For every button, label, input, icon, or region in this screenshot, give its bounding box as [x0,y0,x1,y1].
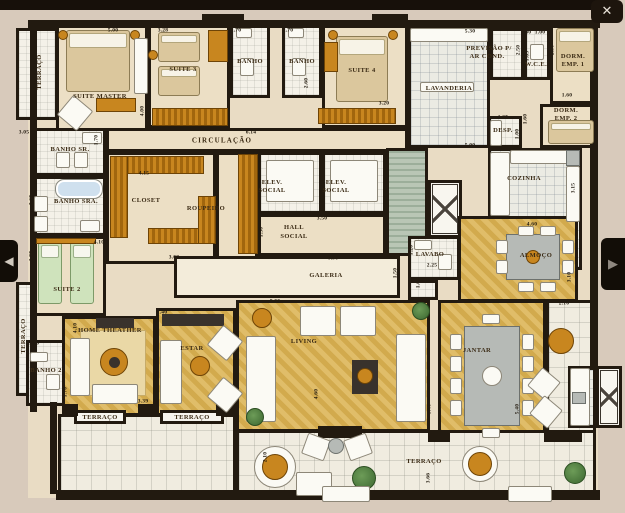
label-banho-sr--17: BANHO SR. [51,147,90,154]
banheira-sra [56,180,102,198]
cadeira-jt-2 [450,356,462,372]
cabine-elev-serv-2 [600,370,618,424]
pillar-bottom-5 [428,432,450,442]
label-roupeiro-20: ROUPEIRO [187,206,225,213]
label-1-35-54: 1.35 [498,115,508,121]
label-1-00-56: 1.00 [515,129,521,139]
label-almo-o-29: ALMOÇO [520,253,552,260]
label-1-50-73: 1.50 [393,268,399,278]
label-1-70-43: 1.70 [231,28,241,34]
vaso-wce [530,44,544,60]
mesa-lateral-estar [190,356,210,376]
label-dorm--10: DORM. [561,54,585,61]
label-2-10-89: 2.10 [559,301,569,307]
label-5-00-57: 5.00 [465,143,475,149]
roupeiro-movel [238,154,258,254]
prev-image-button[interactable]: ◀ [0,240,18,282]
cadeira-al-1 [496,240,508,254]
wall-left-low [50,402,57,494]
label-living-34: LIVING [291,339,317,346]
label-8-00-84: 8.00 [270,299,280,305]
cadeira-al-8 [540,282,556,292]
label-6-90-72: 6.90 [328,256,338,262]
label-suite-master-1: SUITE MASTER [73,94,127,101]
label-1-70-53: 1.70 [564,101,574,107]
vaso-banho2b [46,374,60,390]
label-lavanderia-6: LAVANDERIA [426,86,472,93]
room-lavabo-nicho [408,280,438,300]
label-3-20-45: 3.20 [379,101,389,107]
criado-1 [58,30,68,40]
label-5-00-41: 5.00 [108,28,118,34]
pia-lavabo [414,240,432,250]
cama-s2-1 [38,242,62,304]
label-social-26: SOCIAL [280,234,307,241]
label-1-60-52: 1.60 [562,93,572,99]
label-1-00-48: 1.00 [535,30,545,36]
close-button[interactable]: ✕ [591,0,623,23]
label-suite-3-2: SUITE 3 [169,67,196,74]
label-1-50-71: 1.50 [259,227,265,237]
label-jantar-35: JANTAR [463,348,491,355]
tampo-centro-living [357,368,373,384]
cadeira-jt-10 [482,428,500,438]
sofa-estar [160,340,182,404]
arrow-left-icon: ◀ [4,254,13,268]
mesa-canto-living [252,308,272,328]
label-2-50-49: 2.50 [516,45,522,55]
label-elev--23: ELEV. [326,180,347,187]
criado-s3 [148,50,158,60]
criado-s4-2 [388,30,398,40]
label-suite-4-5: SUITE 4 [348,68,375,75]
room-circulacao [106,128,408,152]
escrivaninha-s4 [324,42,338,72]
label-1-00-76: 1.00 [416,278,422,288]
label-2-50-51: 2.50 [550,45,556,55]
planta-living-2 [246,408,264,426]
tampo-terraco-2 [468,452,492,476]
label-4-60-85: 4.60 [314,389,320,399]
label-4-00-59: 4.00 [140,106,146,116]
pillar-bottom-1 [62,404,78,416]
label-3-39-83: 3.39 [138,399,148,405]
escrivaninha-s3 [208,30,228,62]
centro-jantar [482,366,502,386]
label-dorm--12: DORM. [554,108,578,115]
bide-banho-sra [34,216,48,232]
label-3-05-40: 3.05 [19,130,29,136]
cadeira-jt-5 [522,334,534,350]
label-2-25-75: 2.25 [427,263,437,269]
label-3-60-86: 3.60 [470,299,480,305]
pillar-top-2 [372,14,408,24]
label-4-60-77: 4.60 [527,222,537,228]
cabine-elev-servico [432,184,458,234]
cabeceira-s2 [36,238,96,244]
label-3-28-42: 3.28 [158,28,168,34]
sofa-living-dir [396,334,426,422]
armario-closet-2 [110,156,128,238]
armario-s3 [152,108,228,126]
image-viewer: TERRAÇOSUITE MASTERSUITE 3BANHOBANHOSUIT… [0,0,625,513]
cadeira-jt-9 [482,314,500,324]
label-emp-1-11: EMP. 1 [562,62,585,69]
wall-right-mid [590,296,598,370]
cuba-copa [572,392,586,404]
label-1-20-74: 1.20 [409,245,415,255]
label-emp-2-13: EMP. 2 [555,116,578,123]
pillar-bottom-6 [544,432,582,442]
close-icon: ✕ [602,4,613,19]
label-galeria-27: GALERIA [309,273,342,280]
label-3-90-69: 3.90 [29,251,35,261]
label-terra-o-36: TERRAÇO [406,459,441,466]
bancada-coz-dir [566,166,580,222]
bide-banho-sr [74,152,88,168]
armario-closet-4 [198,196,216,244]
label-w-c-e--9: W.C.E. [525,62,547,69]
floreira-muro-2 [508,486,552,502]
label-1-70-81: 1.70 [63,387,69,397]
label-terra-o-38: TERRAÇO [174,415,209,422]
label-3-05-65: 3.05 [83,174,93,180]
cadeira-al-6 [540,226,556,236]
label-closet-19: CLOSET [132,198,161,205]
top-bar [0,0,600,10]
poltrona-living-2 [340,306,376,336]
label-cozinha-15: COZINHA [507,176,541,183]
bancada-lavanderia [410,28,488,42]
cama-s2-2 [70,242,94,304]
label-1-70-67: 1.70 [94,135,100,145]
label-3-50-70: 3.50 [317,216,327,222]
vaso-banho-sr [56,152,70,168]
label-5-40-88: 5.40 [515,404,521,414]
pia-banho-sra [80,220,100,232]
floreira-muro-1 [322,486,370,502]
cadeira-jt-4 [450,400,462,416]
pufe-terraco [328,438,344,454]
cadeira-al-7 [518,282,534,292]
cama-master [66,30,130,92]
bancada-coz-esq [490,152,510,216]
label-3-15-58: 3.15 [571,183,577,193]
room-galeria [174,256,400,298]
label-2-60-61: 2.60 [304,78,310,88]
label-1-83-50: 1.83 [525,51,531,61]
label-2-60-60: 2.60 [229,79,235,89]
pillar-top-1 [202,14,244,24]
pillar-bottom-2 [138,404,158,416]
label-social-24: SOCIAL [322,188,349,195]
arrow-right-icon: ▶ [608,257,618,272]
criado-s4-1 [328,30,338,40]
cadeira-al-3 [562,240,574,254]
label-4-10-68: 4.10 [94,240,104,246]
label-banho-sra--18: BANHO SRA. [54,199,98,206]
label-banho-4: BANHO [289,59,315,66]
label-4-15-63: 4.15 [139,171,149,177]
cadeira-jt-6 [522,356,534,372]
tv-estar [162,314,224,326]
cadeira-jt-1 [450,334,462,350]
cama-emp2 [548,120,594,144]
cama-s3-1 [158,32,200,62]
label-suite-2-30: SUITE 2 [53,287,80,294]
label-1-70-80: 1.70 [29,341,39,347]
label-elev--21: ELEV. [262,180,283,187]
mesa-terr-dir [548,328,574,354]
label-5-30-46: 5.30 [465,29,475,35]
label-social-22: SOCIAL [258,188,285,195]
cadeira-al-2 [496,260,508,274]
chaise-master [134,38,148,94]
label-banho-3: BANHO [237,59,263,66]
label-terra-o-37: TERRAÇO [82,415,117,422]
label-3-10-78: 3.10 [567,272,573,282]
next-image-button[interactable]: ▶ [601,238,625,290]
label-hall-25: HALL [284,225,304,232]
label-2-10-90: 2.10 [263,452,269,462]
sofa-ht [70,338,90,396]
pia-banho2b [30,352,48,362]
cadeira-jt-3 [450,378,462,394]
planta-terraco-2 [564,462,586,484]
planta-living-1 [412,302,430,320]
label-5-40-87: 5.40 [427,404,433,414]
label-1-80-47: 1.80 [521,30,531,36]
label-terra-o-0: TERRAÇO [37,54,44,89]
label-3-08-64: 3.08 [169,255,179,261]
label-terra-o-39: TERRAÇO [21,318,28,353]
label-lavabo-28: LAVABO [416,252,445,259]
poltrona-living-1 [300,306,336,336]
label-estar-33: ESTAR [180,346,203,353]
label-circula-o-16: CIRCULAÇÃO [192,138,252,145]
label-home-theather-31: HOME THEATHER [78,328,142,335]
label-2-60-66: 2.60 [29,195,35,205]
vaso-banho-sra [34,196,48,212]
label-6-14-62: 6.14 [246,130,256,136]
label-1-60-55: 1.60 [523,114,529,124]
label-4-10-79: 4.10 [73,323,79,333]
label-2-40-82: 2.40 [157,310,167,316]
centro-ht [109,357,120,368]
label-1-70-44: 1.70 [283,28,293,34]
armario-s4 [318,108,396,124]
label-3-66-91: 3.66 [426,473,432,483]
label-desp--14: DESP. [493,128,513,135]
floor-plan: TERRAÇOSUITE MASTERSUITE 3BANHOBANHOSUIT… [0,0,625,513]
label-previs-o-p--7: PREVISÃO P/ [466,46,511,53]
label-banho-2-32: BANHO 2 [30,368,62,375]
room-terraco-inferior-1 [58,414,236,494]
sofa-ht-2 [92,384,138,404]
label-ar-cond--8: AR COND. [470,54,505,61]
fogao [566,150,580,166]
